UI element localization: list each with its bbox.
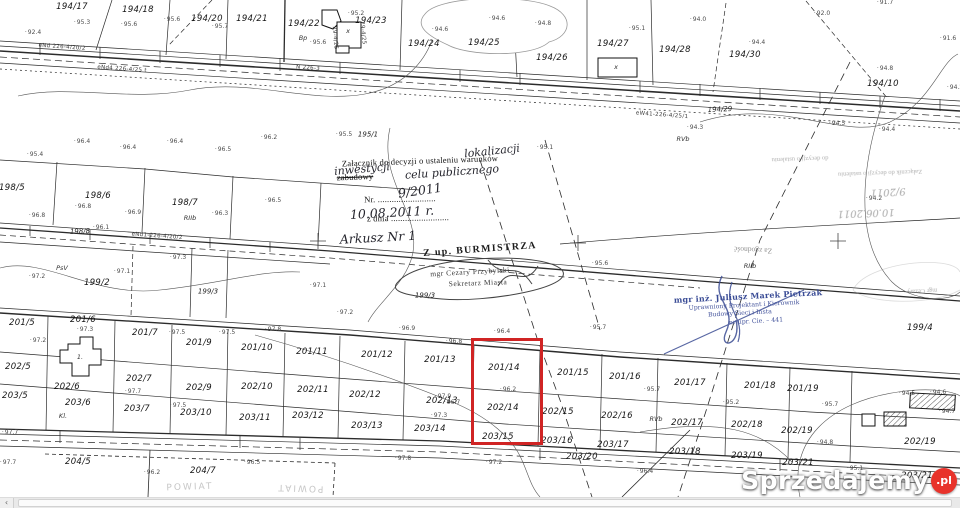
map-label: 96.2 bbox=[261, 135, 277, 141]
map-label: Kl. bbox=[59, 413, 67, 420]
map-label: 201/9 bbox=[186, 339, 212, 348]
map-label: 96.4 bbox=[74, 139, 90, 145]
map-label: 91.6 bbox=[940, 36, 956, 42]
map-label: RVb bbox=[649, 416, 662, 423]
watermark: Sprzedajemy .pl bbox=[741, 466, 957, 495]
map-label: 202/7 bbox=[126, 375, 152, 384]
map-label: 97.7 bbox=[0, 460, 16, 466]
map-label: 203/11 bbox=[239, 414, 271, 423]
map-label: 95.7 bbox=[822, 402, 838, 408]
map-label: 203/14 bbox=[414, 425, 446, 434]
map-label: 201/12 bbox=[361, 351, 393, 360]
map-label: 96.7 bbox=[444, 400, 460, 406]
map-label: N 226-3 bbox=[296, 65, 320, 72]
watermark-badge: .pl bbox=[931, 468, 957, 494]
map-label: 97.3 bbox=[170, 255, 186, 261]
map-label: 95.6 bbox=[121, 22, 137, 28]
map-label: 202/9 bbox=[186, 384, 212, 393]
map-label: 97.5 bbox=[219, 330, 235, 336]
map-label: eW41-226-4/25/1 bbox=[636, 111, 689, 120]
map-label: 194/26 bbox=[536, 54, 568, 63]
map-label: 96.8 bbox=[446, 339, 462, 345]
map-label: 202/5 bbox=[5, 363, 31, 372]
map-label: mgr Cezary bbox=[907, 286, 938, 294]
map-label: eNd1-226-4/20/2 bbox=[131, 232, 182, 241]
map-label: 202/11 bbox=[297, 386, 329, 395]
map-label: 96.4 bbox=[167, 139, 183, 145]
map-label: RVb bbox=[676, 136, 689, 143]
map-label: 97.1 bbox=[310, 283, 326, 289]
map-label: 203/17 bbox=[597, 441, 629, 450]
map-label: 204/7 bbox=[190, 467, 216, 476]
map-label: 194/24 bbox=[408, 40, 440, 49]
map-label: 97.2 bbox=[29, 274, 45, 280]
map-label: 194/10 bbox=[867, 80, 899, 89]
selection-rectangle bbox=[471, 338, 543, 445]
map-label: 1. bbox=[77, 354, 83, 361]
map-label: 201/5 bbox=[9, 319, 35, 328]
map-label: 96.9 bbox=[399, 326, 415, 332]
scrollbar-track[interactable] bbox=[14, 498, 960, 508]
map-label: 95.1 bbox=[629, 26, 645, 32]
map-label: 95.5 bbox=[336, 132, 352, 138]
map-label: mgr Cezary Przybylski bbox=[430, 266, 510, 278]
map-label: 94.8 bbox=[817, 440, 833, 446]
map-label: 94.5 bbox=[829, 121, 845, 127]
map-label: 96.5 bbox=[244, 460, 260, 466]
map-label: 194/22 bbox=[288, 20, 320, 29]
map-label: 203/19 bbox=[731, 452, 763, 461]
map-label: 94.3 bbox=[687, 125, 703, 131]
map-label: 95.1 bbox=[537, 145, 553, 151]
map-label: 194/29 bbox=[708, 106, 733, 114]
map-label: 204/5 bbox=[65, 458, 91, 467]
map-label: 194/20 bbox=[191, 15, 223, 24]
map-label: 198/6 bbox=[85, 192, 111, 201]
map-label: 97.2 bbox=[486, 460, 502, 466]
map-label: Bp bbox=[299, 35, 308, 42]
map-label: 97.5 bbox=[170, 403, 186, 409]
map-label: 194/25 bbox=[468, 39, 500, 48]
map-label: 97.2 bbox=[337, 310, 353, 316]
map-label: 198/7 bbox=[172, 199, 198, 208]
map-label: 202/18 bbox=[731, 421, 763, 430]
map-label: 202/10 bbox=[241, 383, 273, 392]
map-label: 96.8 bbox=[75, 204, 91, 210]
map-label: 203/10 bbox=[180, 409, 212, 418]
map-label: inwestycji bbox=[334, 161, 391, 177]
map-label: 201/15 bbox=[557, 369, 589, 378]
map-label: RIIb bbox=[744, 263, 756, 270]
map-label: eNd 226-4/20/2 bbox=[38, 44, 85, 53]
map-label: lokalizacji bbox=[464, 143, 521, 160]
map-label: 96.3 bbox=[212, 211, 228, 217]
map-label: 97.8 bbox=[265, 327, 281, 333]
map-label: 95.6 bbox=[592, 261, 608, 267]
map-label: 203/12 bbox=[292, 412, 324, 421]
map-label: 92.4 bbox=[25, 30, 41, 36]
map-label: Arkusz Nr 1 bbox=[339, 230, 416, 246]
map-label: 97.5 bbox=[169, 330, 185, 336]
map-label: Za zgodność bbox=[734, 245, 772, 254]
map-label: 94.6 bbox=[930, 390, 946, 396]
map-label: 94.2 bbox=[947, 85, 960, 91]
map-label: 199/2 bbox=[84, 279, 110, 288]
map-label: do decyzji o ustaleniu bbox=[771, 154, 828, 162]
map-label: 96.4 bbox=[637, 469, 653, 475]
map-label: 97.3 bbox=[431, 413, 447, 419]
map-label: 194/28 bbox=[659, 46, 691, 55]
map-label: 94.6 bbox=[432, 27, 448, 33]
map-label: 95.3 bbox=[74, 20, 90, 26]
map-label: 95.7 bbox=[590, 325, 606, 331]
map-label: 94.0 bbox=[690, 17, 706, 23]
map-label: 96.2 bbox=[144, 470, 160, 476]
map-label: 95.2 bbox=[348, 11, 364, 17]
map-label: 203/13 bbox=[351, 422, 383, 431]
map-label: Sekretarz Miasta bbox=[449, 278, 508, 288]
map-label: 203/18 bbox=[669, 448, 701, 457]
map-label: 201/19 bbox=[787, 385, 819, 394]
map-label: 97.3 bbox=[77, 327, 93, 333]
map-label: nr upr. Cie. – 441 bbox=[729, 317, 784, 326]
map-label: 199/4 bbox=[907, 324, 933, 333]
map-label: 91.7 bbox=[877, 0, 893, 6]
map-label: Załącznik do decyzji o ustaleniu bbox=[838, 167, 922, 176]
map-label: 94.8 bbox=[877, 66, 893, 72]
map-label: 96.1 bbox=[93, 225, 109, 231]
map-label: 201/10 bbox=[241, 344, 273, 353]
map-label: 95.4 bbox=[27, 152, 43, 158]
map-label: 97.7 bbox=[2, 430, 18, 436]
map-label: 203/6 bbox=[65, 399, 91, 408]
map-label: 94.8 bbox=[535, 21, 551, 27]
map-label: 96.4 bbox=[494, 329, 510, 335]
map-label: eNd4 226-4/25 t bbox=[97, 66, 147, 75]
map-label: PsV bbox=[56, 265, 68, 272]
map-label: 198/5 bbox=[0, 184, 25, 193]
map-label: 94.4 bbox=[749, 40, 765, 46]
map-label: x bbox=[614, 64, 618, 71]
map-label: 194/30 bbox=[729, 51, 761, 60]
map-label: 96.9 bbox=[125, 210, 141, 216]
map-label: 199/3 bbox=[415, 293, 435, 300]
map-label: 202/6 bbox=[54, 383, 80, 392]
map-label: 201/16 bbox=[609, 373, 641, 382]
map-label: 202/12 bbox=[349, 391, 381, 400]
map-label: 29-4/25 bbox=[358, 21, 366, 45]
map-label: 199/3 bbox=[198, 289, 218, 296]
map-label: 194/21 bbox=[236, 15, 268, 24]
map-label: RIIb bbox=[184, 215, 196, 222]
map-label: 10.06.2011 bbox=[837, 206, 895, 218]
map-label: 94.4 bbox=[879, 127, 895, 133]
map-label: POWIAT bbox=[166, 483, 213, 494]
map-label: 97.8 bbox=[395, 456, 411, 462]
map-label: 94.7 bbox=[939, 409, 955, 415]
map-label: celu publicznego bbox=[405, 163, 500, 181]
map-label: 97.7 bbox=[125, 389, 141, 395]
map-label: 94.5 bbox=[899, 391, 915, 397]
map-label: 97.2 bbox=[30, 338, 46, 344]
map-label: 96.4 bbox=[120, 145, 136, 151]
map-label: 9/2011 bbox=[397, 182, 442, 200]
map-label: 95.6 bbox=[164, 17, 180, 23]
map-label: 92.0 bbox=[814, 11, 830, 17]
map-label: 201/17 bbox=[674, 379, 706, 388]
map-label: 95.7 bbox=[212, 24, 228, 30]
map-label: Z up. BURMISTRZA bbox=[423, 241, 537, 259]
watermark-brand: Sprzedajemy bbox=[741, 466, 929, 495]
map-label: 194/27 bbox=[597, 40, 629, 49]
map-label: 195/1 bbox=[358, 132, 378, 139]
map-label: 202/16 bbox=[601, 412, 633, 421]
map-label: 9/2011 bbox=[870, 185, 906, 197]
map-label: POWIAT bbox=[276, 482, 323, 493]
map-label: 202/19 bbox=[781, 427, 813, 436]
map-label: 95.7 bbox=[644, 387, 660, 393]
map-label: 202/19 bbox=[904, 438, 936, 447]
horizontal-scrollbar[interactable]: ‹ bbox=[0, 497, 960, 508]
map-label: 201/11 bbox=[296, 348, 328, 357]
map-label: 96.5 bbox=[265, 198, 281, 204]
map-label: 203/5 bbox=[2, 392, 28, 401]
map-label: 96.8 bbox=[29, 213, 45, 219]
map-label: 202/15 bbox=[542, 408, 574, 417]
map-label: 29-4/25 bbox=[330, 26, 338, 50]
map-label: 201/18 bbox=[744, 382, 776, 391]
map-viewer: 194/17194/18194/20194/21194/22194/23194/… bbox=[0, 0, 960, 508]
map-label: 201/13 bbox=[424, 356, 456, 365]
map-label: 203/16 bbox=[541, 437, 573, 446]
map-label: 201/7 bbox=[132, 329, 158, 338]
map-label: 95.6 bbox=[310, 40, 326, 46]
map-label: 201/6 bbox=[70, 316, 96, 325]
map-label: 94.6 bbox=[489, 16, 505, 22]
scrollbar-thumb[interactable] bbox=[18, 499, 952, 507]
map-label: 194/18 bbox=[122, 6, 154, 15]
map-label: 96.5 bbox=[215, 147, 231, 153]
map-label: 97.1 bbox=[114, 269, 130, 275]
map-label: 95.2 bbox=[723, 400, 739, 406]
scroll-left-button[interactable]: ‹ bbox=[0, 498, 14, 508]
map-label: 194/17 bbox=[56, 3, 88, 12]
map-label: 203/7 bbox=[124, 405, 150, 414]
map-label: 202/17 bbox=[671, 419, 703, 428]
map-label: 198/8 bbox=[70, 228, 90, 236]
map-label: 203/20 bbox=[566, 453, 598, 462]
map-label: x bbox=[346, 28, 350, 35]
